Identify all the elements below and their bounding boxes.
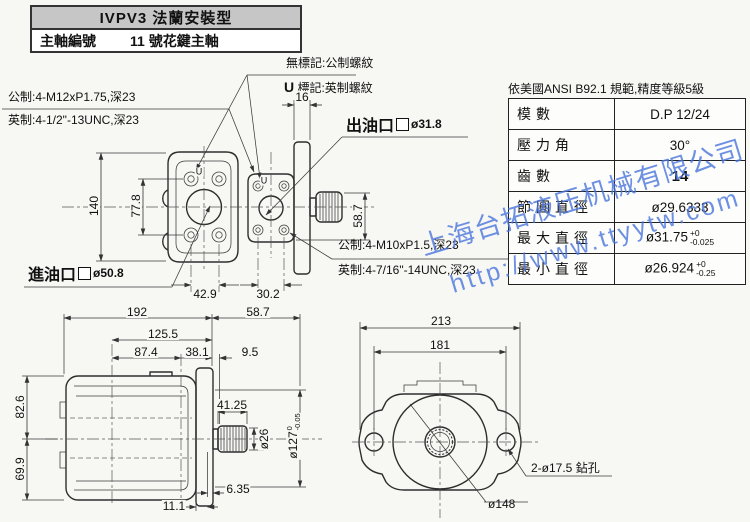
dim-front-height: 140 — [88, 195, 100, 217]
dim-shaft-height: 58.7 — [352, 203, 364, 228]
tolerance-stack: +0-0.025 — [690, 229, 714, 247]
title-block: IVPV3 法蘭安裝型 主軸編號 11 號花鍵主軸 — [30, 5, 302, 53]
profile-view — [22, 314, 322, 511]
table-row: 模數 D.P 12/24 — [509, 99, 746, 130]
pilot-value: ø127 — [286, 431, 300, 458]
square-port-icon — [396, 118, 409, 131]
dim-side-bolt-w: 30.2 — [255, 288, 280, 300]
technical-drawing-page: { "header": { "title": "IVPV3 法蘭安裝型", "s… — [0, 0, 750, 522]
row-value: 14 — [615, 161, 746, 192]
row-value: ø29.6333 — [615, 192, 746, 223]
spindle-value: 11 號花鍵主軸 — [130, 31, 219, 51]
dim-height-bottom: 69.9 — [14, 456, 26, 481]
front-thread-imperial: 英制:4-1/2"-13UNC,深23 — [8, 113, 139, 127]
rear-thread-metric: 公制:4-M10xP1.5,深23 — [338, 238, 459, 252]
dim-front-bolt-v: 77.8 — [130, 193, 142, 218]
tolerance-lower: -0.25 — [696, 268, 715, 278]
row-value: D.P 12/24 — [615, 99, 746, 130]
front-view — [163, 146, 238, 270]
tolerance-lower: -0.025 — [690, 237, 714, 247]
dim-shaft-extension: 58.7 — [245, 306, 270, 318]
dim-spline-length: 41.25 — [216, 399, 248, 411]
spindle-label: 主軸編號 — [40, 31, 96, 51]
table-row: 齒數 14 — [509, 161, 746, 192]
row-label: 壓力角 — [509, 130, 615, 161]
dim-bolt-circle: ø148 — [488, 497, 515, 511]
tolerance-lower: -0.05 — [293, 413, 302, 430]
row-label: 齒數 — [509, 161, 615, 192]
row-value: 30° — [615, 130, 746, 161]
spindle-row: 主軸編號 11 號花鍵主軸 — [32, 30, 300, 51]
row-value: ø26.924+0-0.25 — [615, 254, 746, 285]
value-number: ø31.75 — [646, 230, 688, 245]
square-port-icon — [78, 267, 91, 280]
dim-height-top: 82.6 — [14, 394, 26, 419]
inlet-name: 進油口 — [28, 261, 76, 285]
dim-seg2: 38.1 — [184, 346, 209, 358]
front-thread-metric: 公制:4-M12xP1.75,深23 — [8, 90, 135, 104]
table-row: 節圓直徑 ø29.6333 — [509, 192, 746, 223]
dim-sub-length: 125.5 — [147, 328, 179, 340]
dim-bolt-span: 181 — [429, 339, 451, 351]
table-row: 最大直徑 ø31.75+0-0.025 — [509, 223, 746, 254]
u-thread-mark: U — [260, 177, 269, 186]
dim-flange-thickness: 16 — [294, 91, 309, 103]
dim-offset-large: 11.1 — [162, 500, 186, 512]
flange-view — [352, 322, 612, 518]
outlet-name: 出油口 — [346, 112, 394, 136]
model-title: IVPV3 法蘭安裝型 — [32, 7, 300, 30]
tolerance-stack: 0-0.05 — [286, 413, 302, 430]
dim-pilot-diameter: ø1270-0.05 — [286, 412, 302, 459]
value-number: ø26.924 — [645, 261, 695, 276]
dim-seg1: 87.4 — [133, 346, 158, 358]
row-label: 節圓直徑 — [509, 192, 615, 223]
dim-shaft-diameter: ø26 — [258, 428, 270, 451]
tolerance-stack: +0-0.25 — [696, 260, 715, 278]
row-label: 最大直徑 — [509, 223, 615, 254]
u-mark-prefix: U — [284, 79, 294, 95]
drill-hole-note: 2-ø17.5 鉆孔 — [531, 461, 600, 475]
dim-seg3: 9.5 — [241, 346, 260, 358]
dim-front-bolt-w: 42.9 — [192, 288, 217, 300]
u-thread-mark: U — [195, 168, 204, 177]
table-row: 壓力角 30° — [509, 130, 746, 161]
dim-flange-width: 213 — [430, 315, 452, 327]
row-label: 模數 — [509, 99, 615, 130]
thread-note-line1: 無標記:公制螺紋 — [286, 56, 373, 70]
row-value: ø31.75+0-0.025 — [615, 223, 746, 254]
inlet-port-label: 進油口 ø50.8 — [28, 261, 124, 285]
table-row: 最小直徑 ø26.924+0-0.25 — [509, 254, 746, 285]
rear-thread-imperial: 英制:4-7/16"-14UNC,深23 — [338, 263, 476, 277]
spline-spec-table: 模數 D.P 12/24 壓力角 30° 齒數 14 節圓直徑 ø29.6333… — [508, 98, 746, 285]
outlet-port-label: 出油口 ø31.8 — [346, 112, 442, 136]
dim-total-length: 192 — [126, 306, 148, 318]
outlet-size: ø31.8 — [411, 117, 442, 131]
dim-offset-small: 6.35 — [225, 483, 250, 495]
spline-standard-note: 依美國ANSI B92.1 規範,精度等級5級 — [508, 80, 704, 97]
row-label: 最小直徑 — [509, 254, 615, 285]
inlet-size: ø50.8 — [93, 266, 124, 280]
